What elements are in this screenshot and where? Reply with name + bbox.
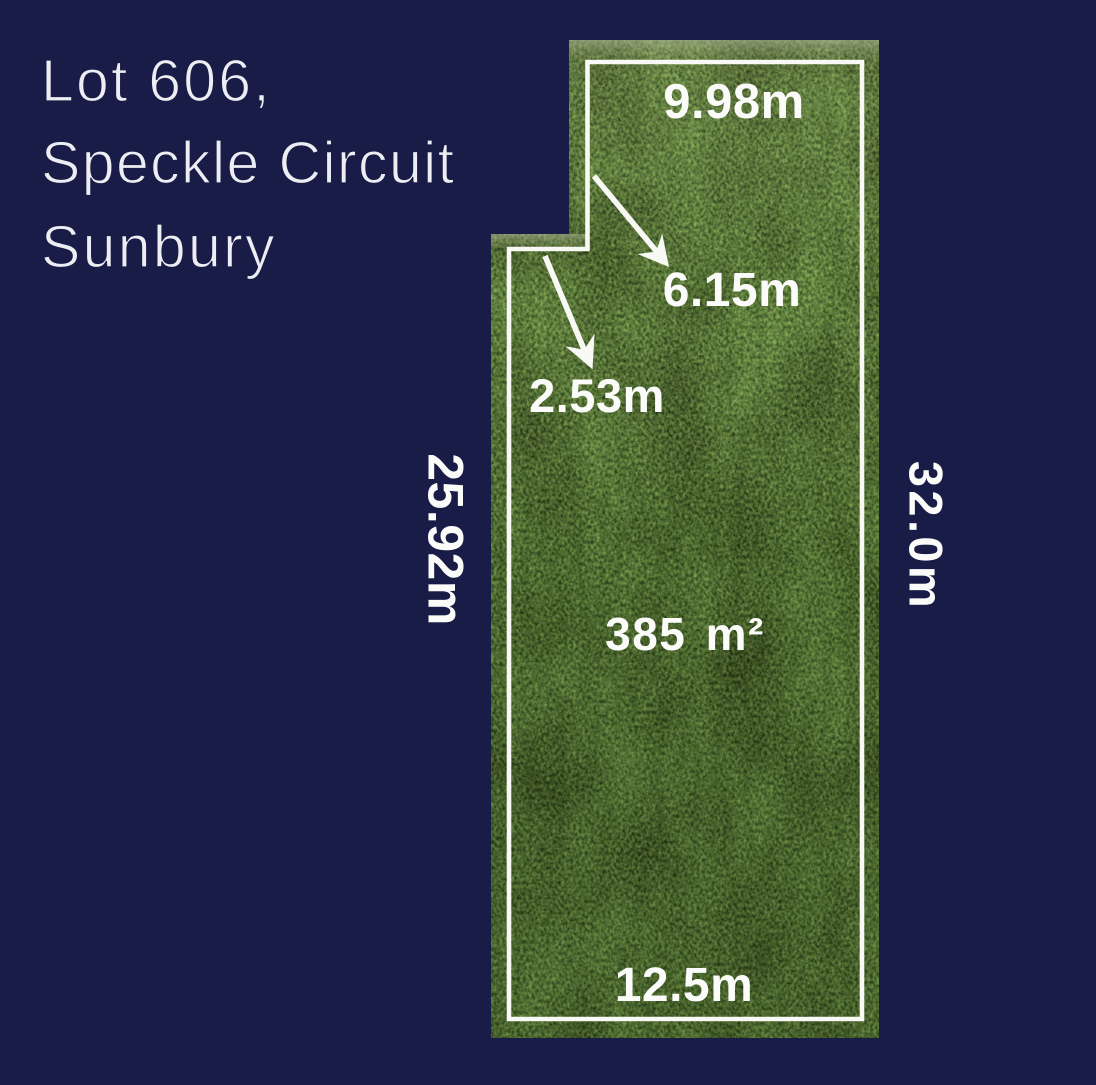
- svg-text:32.0m: 32.0m: [900, 461, 953, 611]
- svg-text:6.15m: 6.15m: [663, 264, 802, 317]
- svg-text:12.5m: 12.5m: [615, 959, 754, 1012]
- svg-text:9.98m: 9.98m: [663, 75, 804, 129]
- svg-text:Sunbury: Sunbury: [41, 214, 277, 280]
- svg-text:2.53m: 2.53m: [529, 369, 665, 422]
- svg-text:385 m²: 385 m²: [605, 608, 765, 660]
- svg-text:Speckle Circuit: Speckle Circuit: [41, 130, 455, 196]
- svg-text:Lot 606,: Lot 606,: [41, 48, 272, 114]
- svg-text:25.92m: 25.92m: [418, 453, 474, 626]
